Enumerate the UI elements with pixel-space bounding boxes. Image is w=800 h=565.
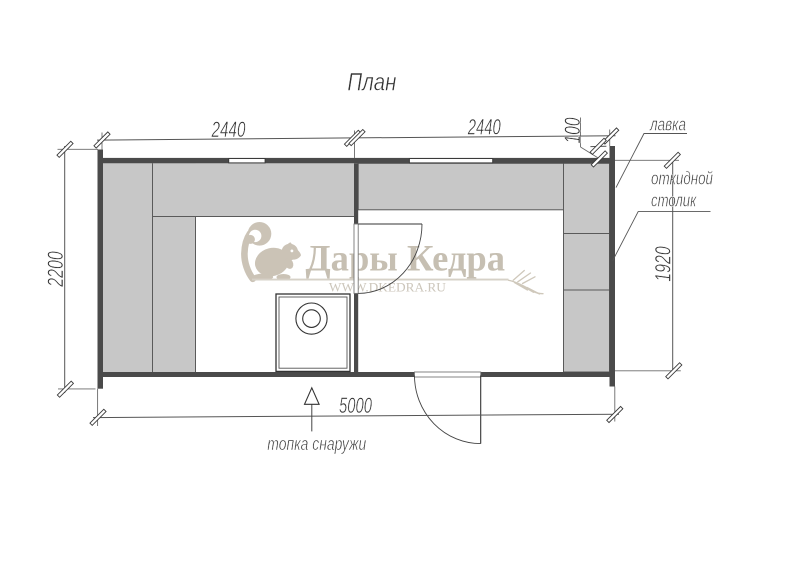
svg-text:100: 100 (560, 117, 585, 144)
svg-text:2440: 2440 (211, 117, 246, 142)
svg-text:Дары Кедра: Дары Кедра (306, 238, 506, 279)
svg-text:топка снаружи: топка снаружи (267, 433, 366, 454)
svg-text:откидной: откидной (651, 169, 713, 189)
svg-text:лавка: лавка (649, 115, 686, 135)
svg-text:2200: 2200 (43, 251, 68, 288)
svg-text:столик: столик (651, 191, 697, 211)
svg-text:WWW.DKEDRA.RU: WWW.DKEDRA.RU (329, 280, 446, 294)
svg-text:План: План (347, 69, 396, 97)
svg-text:1920: 1920 (651, 246, 676, 282)
svg-text:5000: 5000 (339, 393, 373, 418)
svg-text:2440: 2440 (467, 115, 501, 140)
